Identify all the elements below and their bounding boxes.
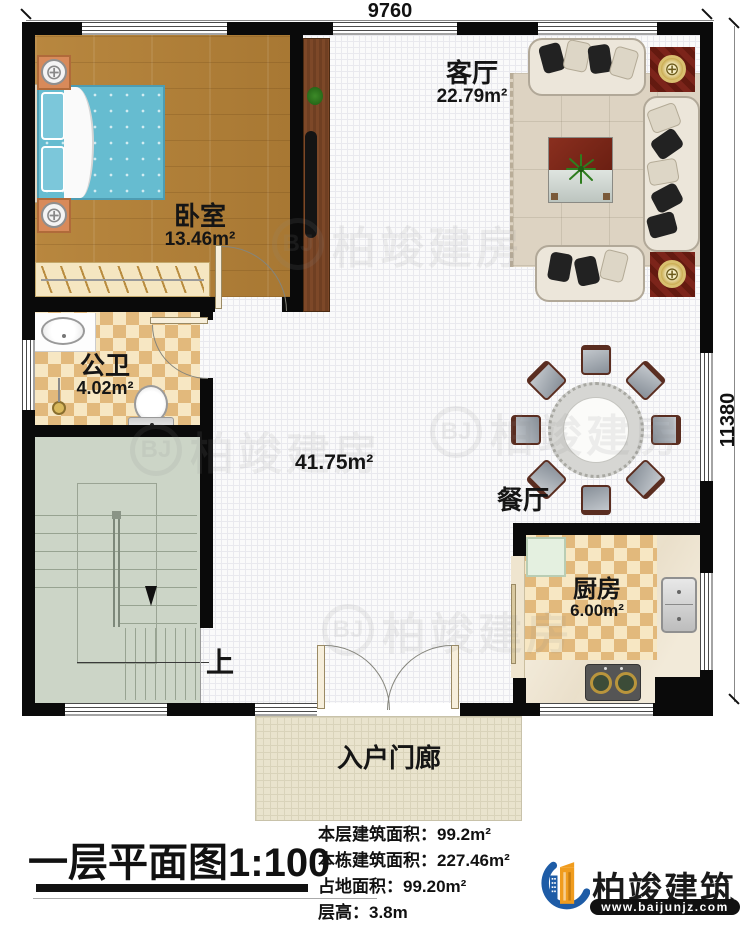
floor-drain-icon — [52, 401, 66, 415]
dining-room-label: 餐厅 — [497, 487, 549, 514]
room-name: 公卫 — [60, 353, 150, 379]
stat-value: 99.2m² — [437, 825, 491, 844]
plan-scale-text: 1:100 — [228, 841, 330, 885]
table-lamp-icon: ⊕ — [658, 55, 686, 83]
stat-label: 层高： — [318, 903, 369, 922]
bathroom-vanity — [35, 313, 96, 352]
watermark-badge: BJ — [322, 604, 374, 656]
burner-icon — [590, 672, 612, 694]
sofa-pillow — [646, 158, 680, 187]
bed-pillow — [41, 146, 65, 192]
dimension-tick — [20, 8, 31, 19]
watermark: BJ 柏竣建房 — [322, 598, 574, 662]
burner-icon — [615, 672, 637, 694]
dining-chair — [581, 345, 611, 375]
watermark: BJ 柏竣建房 — [430, 400, 682, 464]
window — [538, 22, 657, 35]
nightstand: ⊕ — [37, 55, 71, 90]
table-foot — [551, 193, 558, 200]
company-logo: 柏竣建筑 www.baijunjz.com — [540, 855, 745, 921]
dimension-tick — [701, 8, 712, 19]
kitchen-sink — [661, 577, 697, 633]
stair-tread — [165, 628, 166, 700]
wall — [700, 481, 713, 573]
stove-knob — [620, 667, 623, 670]
wall — [167, 703, 255, 716]
bathroom-label: 公卫 4.02m² — [60, 353, 150, 398]
watermark-badge: BJ — [430, 406, 482, 458]
stair-rail — [113, 512, 120, 627]
wardrobe-rail — [41, 279, 204, 281]
wall-bedroom-bottom — [35, 297, 215, 312]
room-name: 卧室 — [140, 203, 260, 230]
wall-kitchen-left — [513, 678, 526, 703]
stair-direction-arrow-icon — [145, 586, 157, 606]
wall — [227, 22, 333, 35]
window — [333, 22, 457, 35]
hall-area-label: 41.75m² — [295, 452, 373, 474]
room-area: 13.46m² — [140, 230, 260, 250]
wall — [457, 22, 538, 35]
stair-tread — [195, 628, 196, 700]
sink-divider — [665, 604, 693, 605]
title-underline-bar — [36, 884, 308, 892]
wall-corner — [655, 677, 713, 716]
wall-kitchen-top — [513, 523, 700, 535]
stat-value: 99.20m² — [403, 877, 466, 896]
window — [65, 703, 167, 716]
plan-title: 一层平面图1:100 — [28, 830, 330, 888]
bedroom-door-leaf — [215, 245, 222, 309]
stat-label: 占地面积： — [318, 877, 403, 896]
watermark: BJ 柏竣建房 — [272, 212, 524, 276]
dimension-top-value: 9760 — [345, 0, 435, 23]
plan-title-text: 一层平面图 — [28, 841, 228, 885]
bedroom-label: 卧室 13.46m² — [140, 203, 260, 250]
stair-tread — [185, 628, 186, 700]
wall-kitchen-left — [513, 523, 526, 556]
plant-icon — [307, 87, 323, 105]
coffee-table — [548, 137, 613, 203]
room-name: 客厅 — [412, 60, 532, 87]
watermark-badge: BJ — [130, 424, 182, 476]
window — [22, 340, 35, 410]
sink-basin-icon — [41, 317, 85, 345]
room-area: 6.00m² — [558, 602, 636, 620]
stat-building-area: 本栋建筑面积：227.46m² — [318, 846, 510, 871]
wardrobe — [35, 262, 210, 297]
window — [700, 353, 713, 481]
fridge — [526, 537, 566, 577]
table-foot — [603, 193, 610, 200]
window — [255, 703, 317, 716]
room-name: 厨房 — [558, 577, 636, 602]
window — [700, 573, 713, 670]
stat-land-area: 占地面积：99.20m² — [318, 872, 466, 897]
gas-stove — [585, 664, 641, 701]
stairs-up-label: 上 — [206, 648, 234, 677]
stairs-up-text: 上 — [206, 647, 234, 678]
stair-tread — [175, 628, 176, 700]
stat-floor-height: 层高：3.8m — [318, 898, 408, 923]
wall — [22, 22, 35, 340]
wall — [460, 703, 540, 716]
stat-value: 227.46m² — [437, 851, 510, 870]
sink-drain-dot — [677, 617, 681, 621]
sink-drain-dot — [62, 334, 66, 338]
room-name: 入户门廊 — [337, 743, 441, 773]
nightstand: ⊕ — [37, 198, 71, 233]
watermark-text: 柏竣建房 — [332, 212, 524, 276]
window — [82, 22, 227, 35]
stair-leader-line — [77, 662, 209, 663]
side-table-bottom: ⊕ — [650, 252, 695, 297]
plant-icon — [564, 152, 598, 186]
room-area: 4.02m² — [60, 379, 150, 398]
dimension-right-value: 11380 — [717, 375, 737, 465]
stat-floor-area: 本层建筑面积：99.2m² — [318, 820, 491, 845]
stat-label: 本层建筑面积： — [318, 825, 437, 844]
nightstand-lamp-icon: ⊕ — [41, 59, 67, 85]
watermark-badge: BJ — [272, 218, 324, 270]
window — [540, 703, 653, 716]
wall — [22, 410, 35, 716]
dining-chair — [581, 485, 611, 515]
watermark-text: 柏竣建房 — [490, 400, 682, 464]
sink-drain-dot — [677, 590, 681, 594]
bed-pillow — [41, 92, 65, 140]
stove-knob — [604, 667, 607, 670]
wall — [700, 22, 713, 353]
wall — [22, 703, 65, 716]
company-website: www.baijunjz.com — [601, 900, 729, 914]
nightstand-lamp-icon: ⊕ — [41, 202, 67, 228]
stair-rail-cap — [112, 511, 121, 519]
room-area: 22.79m² — [412, 87, 532, 107]
company-logo-icon — [540, 858, 590, 918]
company-website-bar: www.baijunjz.com — [590, 899, 740, 915]
room-name: 餐厅 — [497, 485, 549, 515]
stat-value: 3.8m — [369, 903, 408, 922]
stat-label: 本栋建筑面积： — [318, 851, 437, 870]
kitchen-label: 厨房 6.00m² — [558, 577, 636, 620]
porch-label: 入户门廊 — [330, 745, 448, 772]
bathroom-door-leaf — [150, 317, 208, 324]
stairs-hall-divider — [200, 628, 201, 703]
dimension-line-right — [734, 26, 735, 702]
side-table-top: ⊕ — [650, 47, 695, 92]
room-area: 41.75m² — [295, 451, 373, 474]
table-lamp-icon: ⊕ — [658, 260, 686, 288]
floor-plan-page: 上 ⊕ ⊕ — [0, 0, 750, 930]
watermark-text: 柏竣建房 — [382, 598, 574, 662]
living-room-label: 客厅 22.79m² — [412, 60, 532, 107]
